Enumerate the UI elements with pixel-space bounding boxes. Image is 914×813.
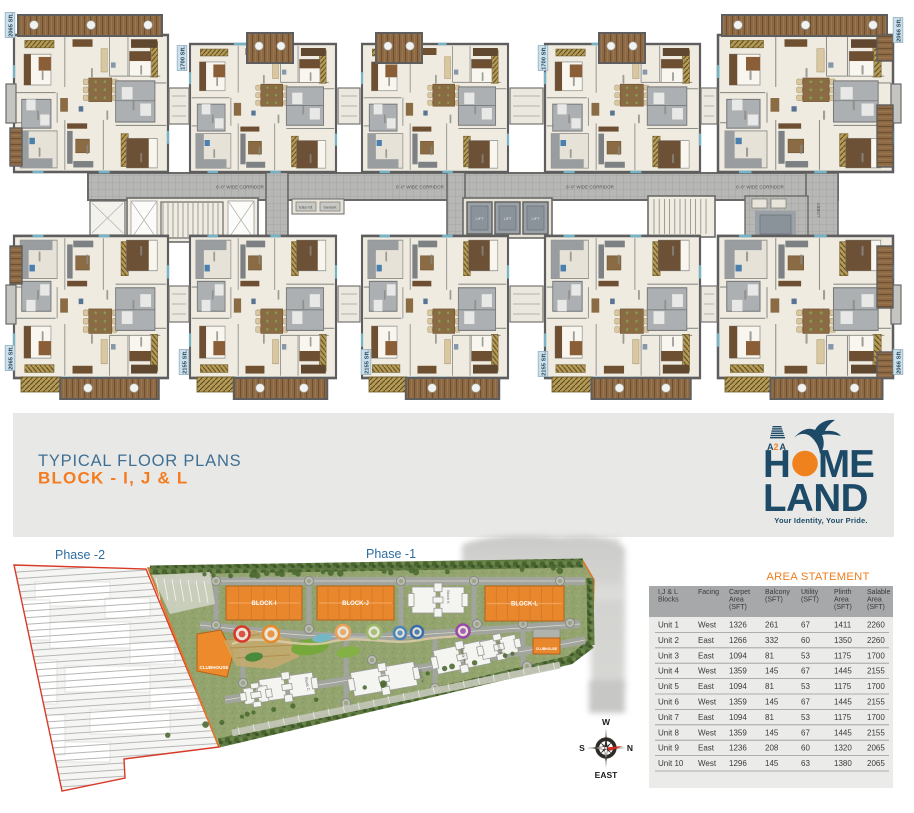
- svg-text:1175: 1175: [834, 682, 852, 691]
- svg-text:1445: 1445: [834, 667, 852, 676]
- svg-text:East: East: [698, 651, 715, 660]
- svg-text:1700 Sft.: 1700 Sft.: [541, 46, 547, 70]
- svg-text:67: 67: [801, 667, 810, 676]
- svg-text:60: 60: [801, 744, 810, 753]
- svg-text:1350: 1350: [834, 636, 852, 645]
- svg-text:2065: 2065: [867, 744, 885, 753]
- svg-text:2260: 2260: [867, 621, 885, 630]
- svg-text:Plinth: Plinth: [834, 589, 852, 596]
- svg-text:West: West: [698, 621, 717, 630]
- svg-text:1380: 1380: [834, 759, 852, 768]
- svg-text:Balcony: Balcony: [765, 589, 790, 596]
- svg-text:1700: 1700: [867, 651, 885, 660]
- svg-text:208: 208: [765, 744, 779, 753]
- svg-text:Utility: Utility: [801, 589, 819, 596]
- svg-text:2155 Sft.: 2155 Sft.: [182, 350, 188, 374]
- svg-text:67: 67: [801, 728, 810, 737]
- svg-text:145: 145: [765, 698, 779, 707]
- svg-text:CLUBHOUSE: CLUBHOUSE: [536, 647, 558, 651]
- svg-text:1700: 1700: [867, 713, 885, 722]
- svg-text:332: 332: [765, 636, 779, 645]
- svg-text:Unit 8: Unit 8: [658, 728, 679, 737]
- svg-text:2065 Sft.: 2065 Sft.: [8, 13, 14, 37]
- svg-text:53: 53: [801, 713, 810, 722]
- svg-text:Salable: Salable: [867, 589, 890, 596]
- svg-text:BLOCK-I: BLOCK-I: [252, 601, 277, 607]
- svg-text:1445: 1445: [834, 728, 852, 737]
- svg-text:2065: 2065: [867, 759, 885, 768]
- svg-text:145: 145: [765, 728, 779, 737]
- svg-text:West: West: [698, 728, 717, 737]
- svg-text:Unit 9: Unit 9: [658, 744, 679, 753]
- svg-text:Facing: Facing: [698, 589, 719, 596]
- svg-text:Blocks: Blocks: [658, 597, 679, 604]
- svg-text:LAND: LAND: [763, 477, 868, 520]
- svg-text:1094: 1094: [729, 682, 747, 691]
- svg-text:Elec-01: Elec-01: [299, 205, 313, 210]
- svg-text:2066 Sft.: 2066 Sft.: [896, 18, 902, 42]
- svg-text:BLOCK-L: BLOCK-L: [511, 602, 538, 608]
- svg-text:63: 63: [801, 759, 810, 768]
- svg-text:1296: 1296: [729, 759, 747, 768]
- svg-text:2155: 2155: [867, 667, 885, 676]
- svg-text:West: West: [698, 667, 717, 676]
- svg-text:145: 145: [765, 759, 779, 768]
- svg-text:81: 81: [765, 651, 774, 660]
- svg-text:1320: 1320: [834, 744, 852, 753]
- svg-text:BLOCK-J: BLOCK-J: [342, 601, 369, 607]
- svg-text:I,J & L: I,J & L: [658, 589, 678, 596]
- svg-text:East: East: [698, 682, 715, 691]
- svg-text:(SFT): (SFT): [765, 597, 783, 604]
- svg-text:LIFT: LIFT: [532, 217, 540, 221]
- svg-text:81: 81: [765, 713, 774, 722]
- svg-text:Phase -2: Phase -2: [55, 548, 105, 562]
- svg-text:1266: 1266: [729, 636, 747, 645]
- svg-text:(SFT): (SFT): [801, 597, 819, 604]
- svg-text:1175: 1175: [834, 713, 852, 722]
- svg-text:East: East: [698, 713, 715, 722]
- svg-text:Area: Area: [729, 597, 744, 604]
- svg-text:Block K: Block K: [446, 590, 451, 604]
- svg-text:1359: 1359: [729, 698, 747, 707]
- svg-text:1175: 1175: [834, 651, 852, 660]
- svg-text:6'-0" WIDE CORRIDOR: 6'-0" WIDE CORRIDOR: [736, 185, 784, 190]
- svg-text:1445: 1445: [834, 698, 852, 707]
- svg-text:2065 Sft.: 2065 Sft.: [8, 346, 14, 370]
- svg-text:2155 Sft.: 2155 Sft.: [541, 352, 547, 376]
- svg-text:Area: Area: [867, 597, 882, 604]
- svg-text:2155 Sft.: 2155 Sft.: [364, 350, 370, 374]
- svg-text:67: 67: [801, 621, 810, 630]
- svg-text:(SFT): (SFT): [729, 604, 747, 611]
- svg-text:Area: Area: [834, 597, 849, 604]
- svg-text:Carpet: Carpet: [729, 589, 750, 596]
- svg-text:East: East: [698, 636, 715, 645]
- svg-text:W: W: [602, 717, 611, 727]
- svg-text:60: 60: [801, 636, 810, 645]
- svg-text:81: 81: [765, 682, 774, 691]
- svg-text:AREA STATEMENT: AREA STATEMENT: [766, 571, 869, 583]
- svg-text:2260: 2260: [867, 636, 885, 645]
- svg-text:Unit 7: Unit 7: [658, 713, 679, 722]
- svg-text:Unit 3: Unit 3: [658, 651, 679, 660]
- svg-text:Unit 5: Unit 5: [658, 682, 679, 691]
- svg-text:LIFT: LIFT: [476, 217, 484, 221]
- svg-text:6'-0" WIDE CORRIDOR: 6'-0" WIDE CORRIDOR: [566, 185, 614, 190]
- svg-text:TYPICAL FLOOR PLANS: TYPICAL FLOOR PLANS: [38, 452, 241, 470]
- svg-text:53: 53: [801, 651, 810, 660]
- svg-text:(SFT): (SFT): [867, 604, 885, 611]
- svg-text:West: West: [698, 759, 717, 768]
- svg-text:Unit 10: Unit 10: [658, 759, 684, 768]
- svg-text:S: S: [579, 743, 585, 753]
- svg-text:261: 261: [765, 621, 779, 630]
- svg-text:1700 Sft.: 1700 Sft.: [180, 46, 186, 70]
- svg-text:2155: 2155: [867, 698, 885, 707]
- svg-text:LIFT: LIFT: [504, 217, 512, 221]
- svg-text:EAST: EAST: [595, 770, 618, 780]
- svg-text:1700: 1700: [867, 682, 885, 691]
- svg-text:Unit 4: Unit 4: [658, 667, 679, 676]
- svg-text:2066 Sft.: 2066 Sft.: [896, 350, 902, 374]
- svg-text:BLOCK - I, J & L: BLOCK - I, J & L: [38, 469, 188, 488]
- svg-text:1094: 1094: [729, 713, 747, 722]
- svg-text:N: N: [627, 743, 633, 753]
- svg-text:East: East: [698, 744, 715, 753]
- svg-text:1359: 1359: [729, 667, 747, 676]
- svg-text:1094: 1094: [729, 651, 747, 660]
- svg-text:Unit 1: Unit 1: [658, 621, 679, 630]
- svg-text:Your Identity, Your Pride.: Your Identity, Your Pride.: [774, 516, 867, 525]
- svg-text:1236: 1236: [729, 744, 747, 753]
- svg-text:Genset: Genset: [324, 205, 338, 210]
- svg-text:145: 145: [765, 667, 779, 676]
- svg-text:(SFT): (SFT): [834, 604, 852, 611]
- svg-text:West: West: [698, 698, 717, 707]
- svg-text:6'-0" WIDE CORRIDOR: 6'-0" WIDE CORRIDOR: [396, 185, 444, 190]
- svg-text:1326: 1326: [729, 621, 747, 630]
- svg-text:6'-0" WIDE CORRIDOR: 6'-0" WIDE CORRIDOR: [216, 185, 264, 190]
- svg-text:Unit 6: Unit 6: [658, 698, 679, 707]
- svg-text:1411: 1411: [834, 621, 852, 630]
- svg-text:Phase -1: Phase -1: [366, 547, 416, 561]
- svg-text:LOBBY: LOBBY: [816, 202, 821, 217]
- svg-text:1359: 1359: [729, 728, 747, 737]
- svg-text:CLUBHOUSE: CLUBHOUSE: [199, 665, 228, 670]
- svg-text:Unit 2: Unit 2: [658, 636, 679, 645]
- svg-text:53: 53: [801, 682, 810, 691]
- svg-text:2155: 2155: [867, 728, 885, 737]
- svg-text:67: 67: [801, 698, 810, 707]
